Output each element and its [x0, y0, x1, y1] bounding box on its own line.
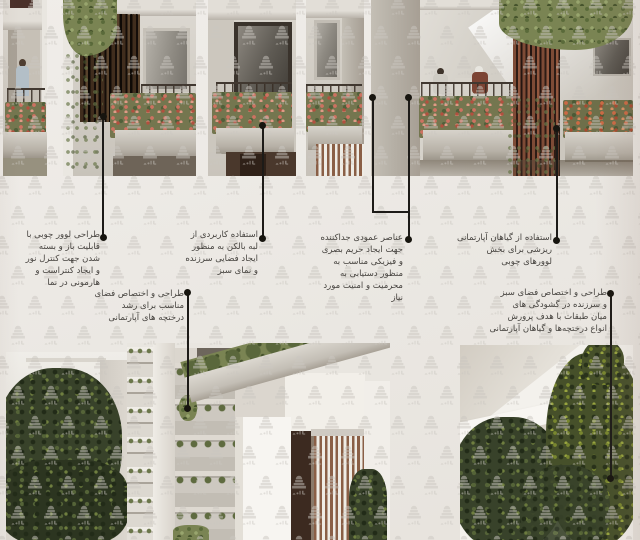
watermark-logo-icon [635, 144, 640, 169]
screen-header-beam [311, 429, 366, 436]
watermark-logo-icon [256, 294, 276, 319]
leader-dot [607, 290, 614, 297]
watermark-logo-icon [421, 534, 441, 540]
watermark-logo-icon [371, 204, 391, 229]
watermark-logo-icon [520, 174, 540, 199]
top-beam [208, 0, 296, 20]
concrete-planter [216, 128, 294, 154]
render-panel-terrace-people [371, 0, 633, 176]
leader-dot [553, 125, 560, 132]
watermark-logo-icon [8, 204, 28, 229]
watermark-logo-icon [58, 174, 78, 199]
watermark-logo-icon [503, 204, 523, 229]
watermark-logo-icon [289, 234, 309, 259]
concrete-planter [565, 132, 633, 162]
top-beam [306, 0, 364, 18]
balcony-slab [3, 8, 47, 30]
watermark-logo-icon [404, 504, 424, 529]
watermark-logo-icon [388, 534, 408, 540]
watermark-logo-icon [41, 324, 61, 349]
watermark-logo-icon [437, 264, 457, 289]
leader-dot [553, 237, 560, 244]
watermark-logo-icon [157, 234, 177, 259]
watermark-logo-icon [635, 384, 640, 409]
watermark-logo-icon [602, 264, 622, 289]
watermark-logo-icon [107, 264, 127, 289]
concrete-pier [371, 0, 420, 176]
annotation-louver: طراحی لوور چوبی باقابلیت باز و بستهشدن ج… [26, 229, 100, 289]
trailing-vine [65, 52, 103, 174]
ground-shrub [173, 525, 209, 540]
flower-box [5, 102, 46, 135]
watermark-logo-icon [25, 174, 45, 199]
white-column [235, 417, 291, 540]
watermark-logo-icon [437, 324, 457, 349]
watermark-logo-icon [454, 294, 474, 319]
tree-canopy-dark [520, 465, 610, 540]
watermark-logo-icon [140, 264, 160, 289]
watermark-logo-icon [421, 354, 441, 379]
watermark-logo-icon [58, 294, 78, 319]
balcony-plants [127, 347, 153, 540]
watermark-logo-icon [404, 264, 424, 289]
render-panel-courtyard [127, 343, 390, 540]
watermark-logo-icon [0, 294, 12, 319]
dark-doorway [291, 431, 314, 540]
watermark-logo-icon [586, 234, 606, 259]
annotation-balcony-edge: استفاده کاربردی ازلبه بالکن به منظورایجا… [185, 229, 258, 277]
watermark-logo-icon [107, 324, 127, 349]
concrete-planter [3, 132, 47, 158]
leader-line [372, 97, 374, 213]
watermark-logo-icon [223, 294, 243, 319]
trailing-vine [507, 96, 555, 176]
leader-line [187, 292, 189, 408]
watermark-logo-icon [404, 444, 424, 469]
watermark-logo-icon [157, 174, 177, 199]
concrete-planter [115, 130, 196, 158]
render-panel-balcony-person [3, 0, 47, 176]
shrub [349, 469, 387, 540]
tree-branch [582, 345, 624, 385]
render-panel-window-flowerbox [208, 0, 296, 176]
leader-dot [100, 113, 107, 120]
watermark-logo-icon [437, 504, 457, 529]
concrete-planter [423, 130, 519, 160]
upper-window-strip [10, 0, 33, 8]
watermark-logo-icon [454, 174, 474, 199]
watermark-logo-icon [437, 384, 457, 409]
watermark-logo-icon [272, 204, 292, 229]
watermark-logo-icon [569, 264, 589, 289]
architecture-presentation-poster: طراحی لوور چوبی باقابلیت باز و بستهشدن ج… [0, 0, 640, 540]
watermark-logo-icon [635, 504, 640, 529]
leader-dot [259, 235, 266, 242]
shadow-band [113, 156, 196, 176]
watermark-logo-icon [388, 174, 408, 199]
watermark-logo-icon [619, 234, 639, 259]
watermark-logo-icon [25, 294, 45, 319]
watermark-logo-icon [619, 294, 639, 319]
watermark-logo-icon [586, 174, 606, 199]
leader-dot [405, 236, 412, 243]
facade-line [26, 358, 106, 362]
watermark-logo-icon [190, 294, 210, 319]
watermark-logo-icon [487, 174, 507, 199]
watermark-logo-icon [635, 264, 640, 289]
watermark-logo-icon [421, 414, 441, 439]
watermark-logo-icon [536, 204, 556, 229]
watermark-logo-icon [322, 174, 342, 199]
render-panel-tree-right [460, 345, 633, 540]
watermark-logo-icon [421, 474, 441, 499]
watermark-logo-icon [470, 204, 490, 229]
annotation-hanging-plants: استفاده از گیاهان آپارتمانیریزشی برای بخ… [457, 232, 552, 268]
watermark-logo-icon [338, 204, 358, 229]
watermark-logo-icon [305, 204, 325, 229]
leader-line [102, 116, 104, 237]
watermark-logo-icon [8, 324, 28, 349]
watermark-logo-icon [256, 174, 276, 199]
watermark-logo-icon [173, 204, 193, 229]
watermark-logo-icon [190, 174, 210, 199]
leader-line [610, 293, 612, 478]
leader-dot [184, 289, 191, 296]
watermark-logo-icon [437, 204, 457, 229]
leader-line [262, 125, 264, 238]
render-panel-pier-slats [306, 0, 364, 176]
leader-line-bracket [372, 211, 410, 213]
watermark-logo-icon [404, 204, 424, 229]
watermark-logo-icon [74, 324, 94, 349]
render-panel-wood-louvers [63, 0, 196, 176]
annotation-floor-openings: طراحی و اختصاص فضای سبزو سرزنده در گشودگ… [489, 287, 607, 335]
watermark-logo-icon [635, 204, 640, 229]
watermark-logo-icon [404, 324, 424, 349]
watermark-logo-icon [289, 294, 309, 319]
leader-dot [405, 94, 412, 101]
annotation-vertical-elements: عناصر عمودی جداکنندهجهت ایجاد حریم بصریو… [320, 232, 403, 304]
watermark-logo-icon [41, 204, 61, 229]
watermark-logo-icon [0, 174, 12, 199]
watermark-logo-icon [91, 174, 111, 199]
watermark-logo-icon [421, 174, 441, 199]
window [314, 20, 340, 80]
watermark-logo-icon [124, 174, 144, 199]
leader-line [556, 128, 558, 240]
watermark-logo-icon [272, 264, 292, 289]
watermark-logo-icon [602, 204, 622, 229]
watermark-logo-icon [289, 174, 309, 199]
leader-dot [259, 122, 266, 129]
watermark-logo-icon [635, 84, 640, 109]
watermark-logo-icon [388, 354, 408, 379]
render-panel-tree-left [6, 352, 127, 540]
annotation-shrub-space: طراحی و اختصاص فضایمناسب برای رشددرختچه … [95, 288, 184, 324]
watermark-logo-icon [206, 204, 226, 229]
watermark-logo-icon [404, 384, 424, 409]
leader-dot [607, 475, 614, 482]
shadow-band [3, 158, 47, 176]
watermark-logo-icon [635, 324, 640, 349]
watermark-logo-icon [0, 234, 12, 259]
watermark-logo-icon [635, 444, 640, 469]
watermark-logo-icon [124, 234, 144, 259]
watermark-logo-icon [223, 174, 243, 199]
window [143, 28, 190, 92]
leader-dot [369, 94, 376, 101]
watermark-logo-icon [421, 294, 441, 319]
wood-slat-fence [316, 144, 364, 176]
watermark-logo-icon [388, 474, 408, 499]
leader-dot [184, 405, 191, 412]
watermark-logo-icon [635, 24, 640, 49]
watermark-logo-icon [619, 174, 639, 199]
watermark-logo-icon [421, 234, 441, 259]
watermark-logo-icon [107, 204, 127, 229]
leader-line [408, 97, 410, 239]
tree-canopy-dark [6, 460, 127, 540]
watermark-logo-icon [437, 444, 457, 469]
watermark-logo-icon [140, 204, 160, 229]
concrete-pier [153, 343, 175, 540]
watermark-logo-icon [569, 204, 589, 229]
watermark-logo-icon [388, 414, 408, 439]
watermark-logo-icon [239, 204, 259, 229]
leader-dot [100, 234, 107, 241]
watermark-logo-icon [74, 204, 94, 229]
